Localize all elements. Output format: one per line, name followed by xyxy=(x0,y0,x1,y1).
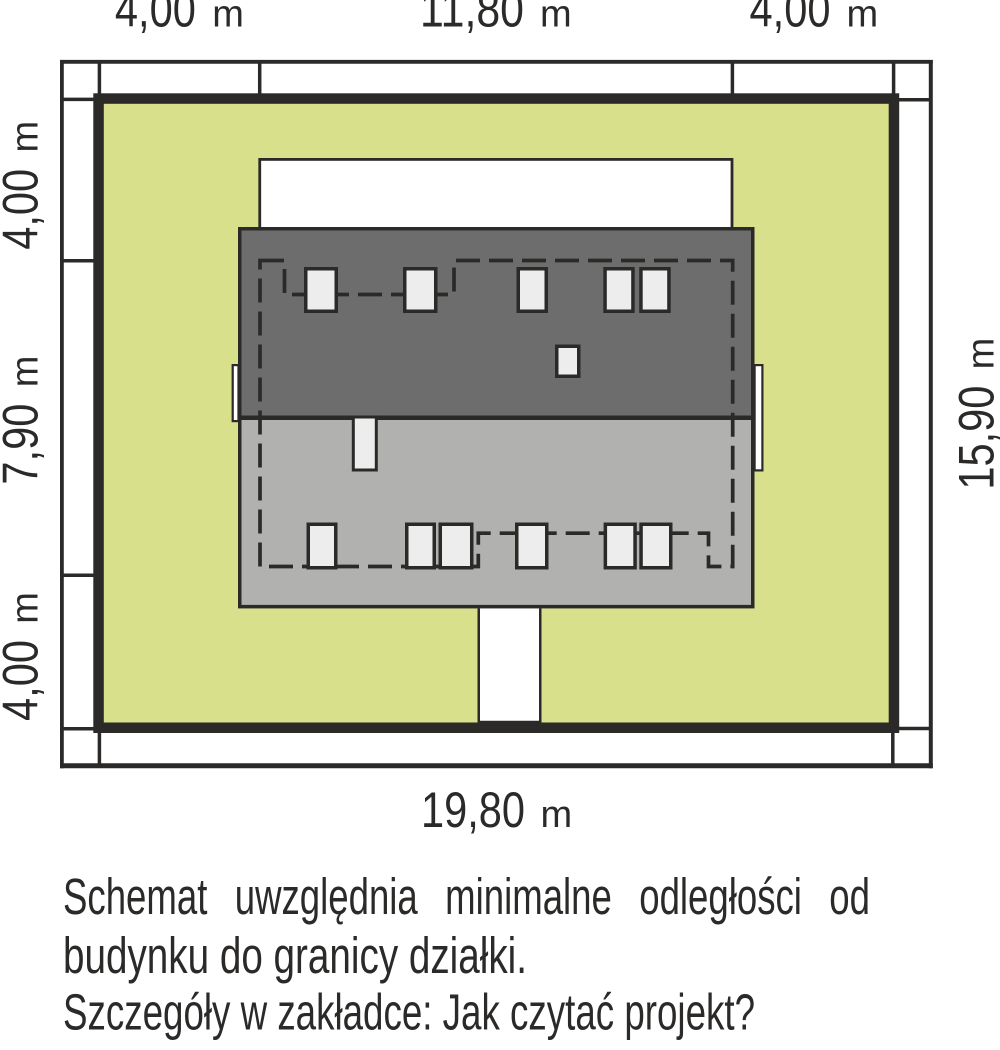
svg-text:Szczegóły w zakładce: Jak czyt: Szczegóły w zakładce: Jak czytać projekt… xyxy=(63,983,755,1040)
svg-text:m: m xyxy=(5,592,47,624)
svg-text:m: m xyxy=(5,121,47,153)
svg-text:4,00: 4,00 xyxy=(0,640,49,721)
svg-text:15,90: 15,90 xyxy=(949,386,1000,490)
svg-text:19,80: 19,80 xyxy=(421,782,525,838)
svg-text:m: m xyxy=(961,338,1000,370)
svg-text:7,90: 7,90 xyxy=(0,404,49,485)
svg-text:m: m xyxy=(847,0,879,36)
svg-text:m: m xyxy=(5,356,47,388)
svg-text:m: m xyxy=(212,0,244,36)
svg-text:Schemat uwzględnia minimalne o: Schemat uwzględnia minimalne odległości … xyxy=(63,868,870,925)
svg-text:m: m xyxy=(540,0,572,36)
svg-text:4,00: 4,00 xyxy=(0,169,49,250)
svg-text:4,00: 4,00 xyxy=(750,0,831,38)
svg-text:11,80: 11,80 xyxy=(420,0,524,38)
svg-text:budynku do granicy działki.: budynku do granicy działki. xyxy=(63,927,527,984)
svg-text:m: m xyxy=(541,794,573,836)
svg-text:4,00: 4,00 xyxy=(115,0,196,38)
